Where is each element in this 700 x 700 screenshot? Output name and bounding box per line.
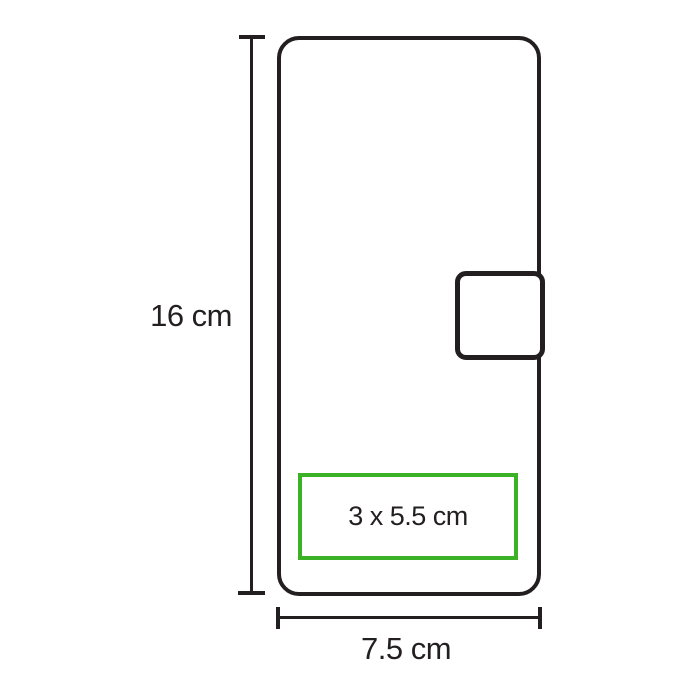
imprint-area-box: 3 x 5.5 cm [298,473,518,560]
width-dimension-label: 7.5 cm [306,633,506,664]
width-dimension-line [277,616,541,619]
height-dimension-tick-bottom [238,591,265,595]
width-dimension-tick-left [276,607,280,629]
height-dimension-tick-top [239,35,265,39]
height-dimension-label: 16 cm [130,300,232,331]
imprint-area-label: 3 x 5.5 cm [348,501,468,532]
dimension-diagram: 3 x 5.5 cm 16 cm 7.5 cm [0,0,700,700]
clasp-tab-outline [455,271,545,360]
height-dimension-line [250,37,253,593]
width-dimension-tick-right [538,607,542,629]
